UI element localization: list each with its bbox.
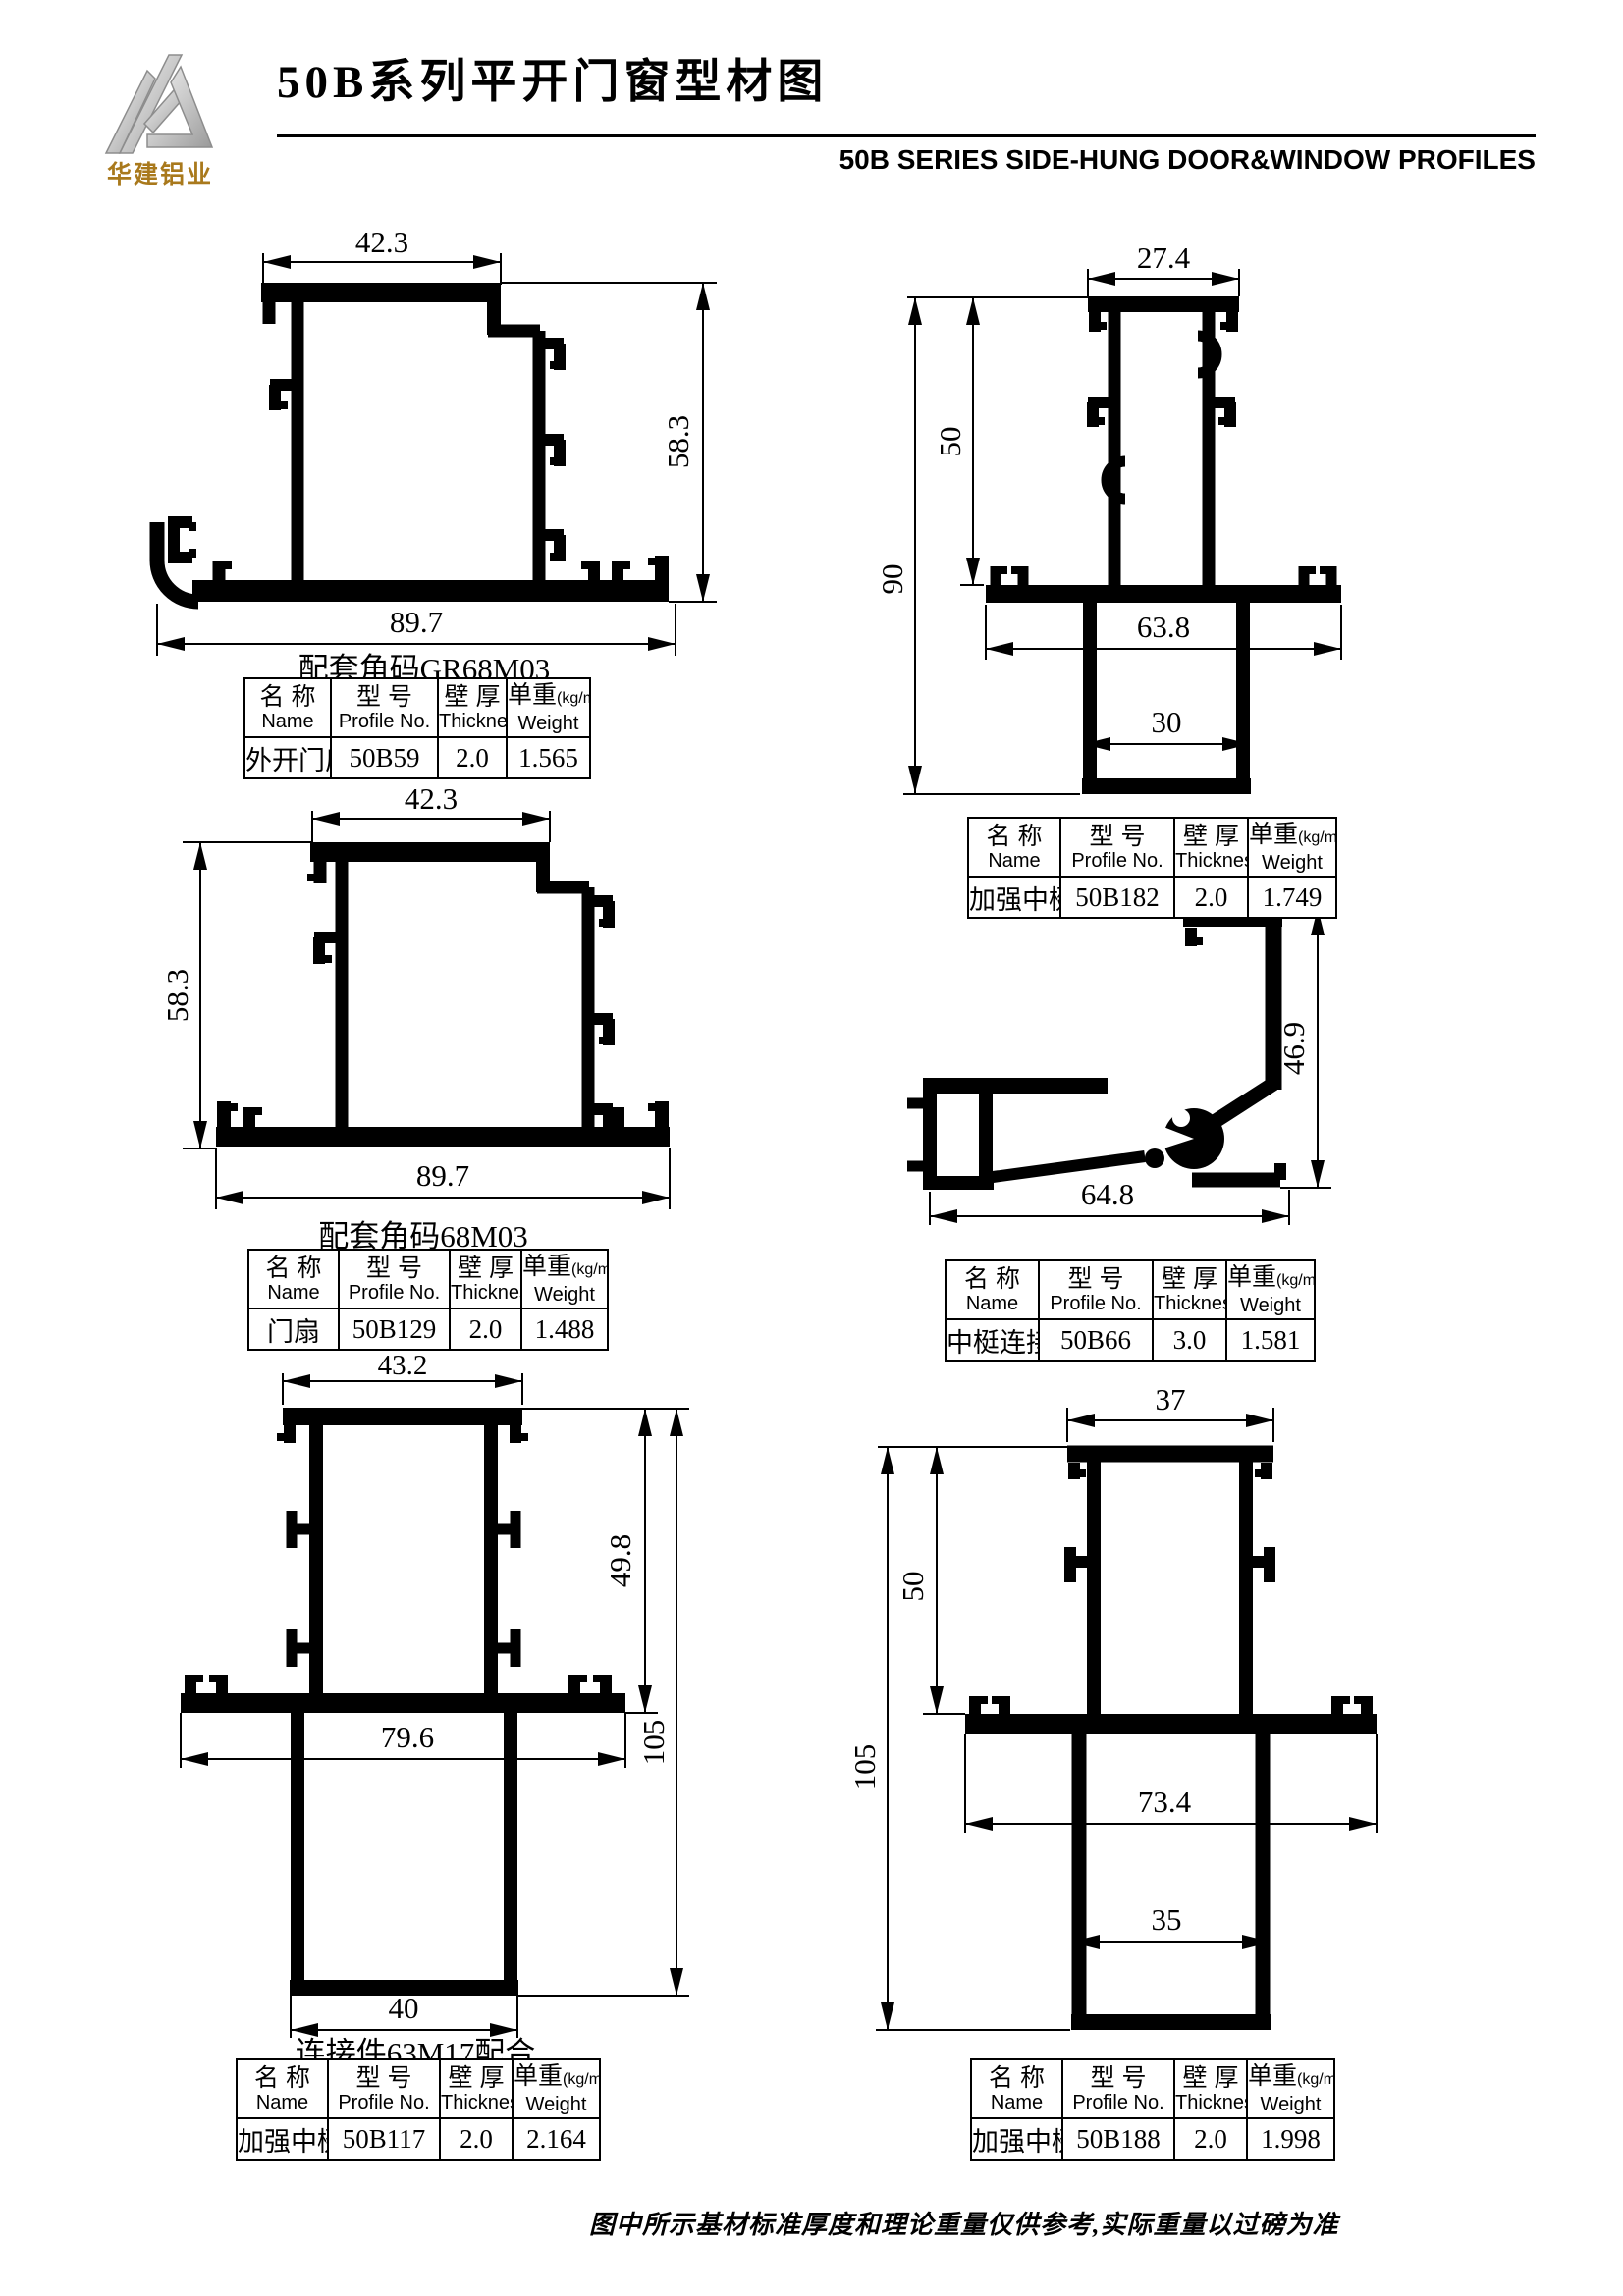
- profile-drawing-50b59: 42.3 58.3 89.7: [147, 226, 717, 663]
- col-header-thickness: 壁 厚Thickness: [1174, 2059, 1247, 2118]
- table-row: 中梃连接件 50B66 3.0 1.581: [946, 1319, 1315, 1361]
- cell-profile-no: 50B59: [331, 737, 438, 778]
- catalog-page: 华建铝业 50B系列平开门窗型材图 50B SERIES SIDE-HUNG D…: [0, 0, 1623, 2296]
- dim-label-top: 42.3: [355, 225, 408, 259]
- dim-label-bottom: 89.7: [390, 605, 443, 639]
- col-header-name: 名 称Name: [946, 1260, 1039, 1319]
- table-row: 门扇 50B129 2.0 1.488: [248, 1308, 608, 1350]
- table-row: 外开门扇 50B59 2.0 1.565: [244, 737, 590, 778]
- col-header-thickness: 壁 厚Thickness: [450, 1250, 521, 1308]
- col-header-weight: 单重(kg/m)Weight: [1247, 2059, 1334, 2118]
- cell-thickness: 2.0: [1174, 877, 1248, 918]
- spec-table-50b188: 名 称Name 型 号Profile No. 壁 厚Thickness 单重(k…: [970, 2058, 1335, 2161]
- col-header-profile: 型 号Profile No.: [328, 2059, 440, 2118]
- dim-label-inner: 50: [895, 1572, 930, 1602]
- dim-label-side: 58.3: [661, 415, 695, 468]
- dim-label-mid: 63.8: [1137, 610, 1190, 644]
- profile-drawing-50b182: 27.4 50 90 63.8 30: [874, 236, 1365, 810]
- dim-label-bottom: 89.7: [416, 1158, 469, 1193]
- col-header-weight: 单重(kg/m)Weight: [513, 2059, 600, 2118]
- dim-label-total: 105: [847, 1744, 882, 1790]
- cell-profile-no: 50B117: [328, 2118, 440, 2160]
- profile-outline: [181, 1416, 625, 1988]
- table-row: 加强中梃 50B182 2.0 1.749: [968, 877, 1336, 918]
- title-divider: [277, 134, 1536, 137]
- dimensions: 37 50 105 73.4 35: [847, 1382, 1377, 2030]
- table-row: 加强中梃 50B188 2.0 1.998: [971, 2118, 1334, 2160]
- col-header-profile: 型 号Profile No.: [339, 1250, 450, 1308]
- cell-thickness: 2.0: [440, 2118, 513, 2160]
- col-header-name: 名 称Name: [248, 1250, 339, 1308]
- profile-outline: [965, 1454, 1377, 2022]
- col-header-name: 名 称Name: [968, 818, 1060, 877]
- col-header-thickness: 壁 厚Thickness: [1153, 1260, 1226, 1319]
- col-header-weight: 单重(kg/m)Weight: [1226, 1260, 1315, 1319]
- spec-table-50b117: 名 称Name 型 号Profile No. 壁 厚Thickness 单重(k…: [236, 2058, 601, 2161]
- profile-outline: [216, 850, 670, 1137]
- spec-table-50b129: 名 称Name 型 号Profile No. 壁 厚Thickness 单重(k…: [247, 1249, 609, 1351]
- cell-thickness: 2.0: [450, 1308, 521, 1350]
- page-subtitle-en: 50B SERIES SIDE-HUNG DOOR&WINDOW PROFILE…: [277, 144, 1536, 176]
- col-header-weight: 单重(kg/m)Weight: [507, 678, 590, 737]
- cell-thickness: 2.0: [438, 737, 507, 778]
- company-logo-icon: [90, 37, 233, 157]
- col-header-name: 名 称Name: [244, 678, 331, 737]
- cell-profile-no: 50B188: [1062, 2118, 1174, 2160]
- cell-profile-no: 50B129: [339, 1308, 450, 1350]
- spec-table-50b182: 名 称Name 型 号Profile No. 壁 厚Thickness 单重(k…: [967, 817, 1337, 919]
- dim-label-inner: 49.8: [603, 1534, 637, 1587]
- profile-outline: [907, 909, 1282, 1184]
- profile-drawing-50b117: 43.2 49.8 105 79.6 40: [128, 1360, 697, 2052]
- cell-name: 门扇: [248, 1308, 339, 1350]
- col-header-weight: 单重(kg/m)Weight: [1248, 818, 1336, 877]
- dim-label-inner: 50: [933, 427, 967, 457]
- cell-weight: 2.164: [513, 2118, 600, 2160]
- profile-drawing-50b66: 46.9 64.8: [884, 895, 1345, 1234]
- cell-thickness: 3.0: [1153, 1319, 1226, 1361]
- spec-table-50b59: 名 称Name 型 号Profile No. 壁 厚Thickness 单重(k…: [243, 677, 591, 779]
- cell-weight: 1.488: [521, 1308, 608, 1350]
- cell-weight: 1.998: [1247, 2118, 1334, 2160]
- col-header-profile: 型 号Profile No.: [1039, 1260, 1153, 1319]
- cell-profile-no: 50B66: [1039, 1319, 1153, 1361]
- page-title: 50B系列平开门窗型材图: [277, 43, 828, 111]
- dim-label-total: 90: [875, 564, 909, 595]
- cell-name: 加强中梃: [237, 2118, 328, 2160]
- col-header-thickness: 壁 厚Thickness: [1174, 818, 1248, 877]
- dim-label-mid: 73.4: [1138, 1785, 1192, 1819]
- table-row: 加强中梃 50B117 2.0 2.164: [237, 2118, 600, 2160]
- company-name: 华建铝业: [86, 155, 234, 190]
- dim-label-top: 42.3: [405, 781, 458, 816]
- cell-weight: 1.581: [1226, 1319, 1315, 1361]
- cell-profile-no: 50B182: [1060, 877, 1174, 918]
- spec-table-50b66: 名 称Name 型 号Profile No. 壁 厚Thickness 单重(k…: [945, 1259, 1316, 1362]
- col-header-profile: 型 号Profile No.: [1060, 818, 1174, 877]
- dim-label-top: 27.4: [1137, 240, 1191, 275]
- cell-name: 加强中梃: [971, 2118, 1062, 2160]
- profile-drawing-50b188: 37 50 105 73.4 35: [864, 1364, 1414, 2047]
- dim-label-top: 43.2: [378, 1350, 428, 1381]
- dim-label-side: 46.9: [1276, 1022, 1311, 1075]
- dim-label-lower: 30: [1152, 705, 1182, 739]
- dim-label-mid: 79.6: [381, 1720, 434, 1754]
- cell-name: 加强中梃: [968, 877, 1060, 918]
- col-header-name: 名 称Name: [237, 2059, 328, 2118]
- cell-thickness: 2.0: [1174, 2118, 1247, 2160]
- cell-name: 中梃连接件: [946, 1319, 1039, 1361]
- col-header-name: 名 称Name: [971, 2059, 1062, 2118]
- col-header-profile: 型 号Profile No.: [331, 678, 438, 737]
- footer-disclaimer: 图中所示基材标准厚度和理论重量仅供参考,实际重量以过磅为准: [589, 2205, 1276, 2241]
- profile-drawing-50b129: 42.3 58.3 89.7: [147, 785, 717, 1222]
- dim-label-bottom: 64.8: [1081, 1177, 1134, 1211]
- profile-outline: [157, 291, 669, 602]
- cell-weight: 1.749: [1248, 877, 1336, 918]
- dim-label-side: 58.3: [160, 969, 194, 1022]
- dim-label-top: 37: [1156, 1382, 1186, 1416]
- col-header-weight: 单重(kg/m)Weight: [521, 1250, 608, 1308]
- dim-label-total: 105: [636, 1720, 671, 1766]
- col-header-thickness: 壁 厚Thickness: [438, 678, 507, 737]
- cell-weight: 1.565: [507, 737, 590, 778]
- cell-name: 外开门扇: [244, 737, 331, 778]
- col-header-thickness: 壁 厚Thickness: [440, 2059, 513, 2118]
- dim-label-lower: 40: [389, 1991, 419, 2025]
- col-header-profile: 型 号Profile No.: [1062, 2059, 1174, 2118]
- dim-label-lower: 35: [1152, 1902, 1182, 1937]
